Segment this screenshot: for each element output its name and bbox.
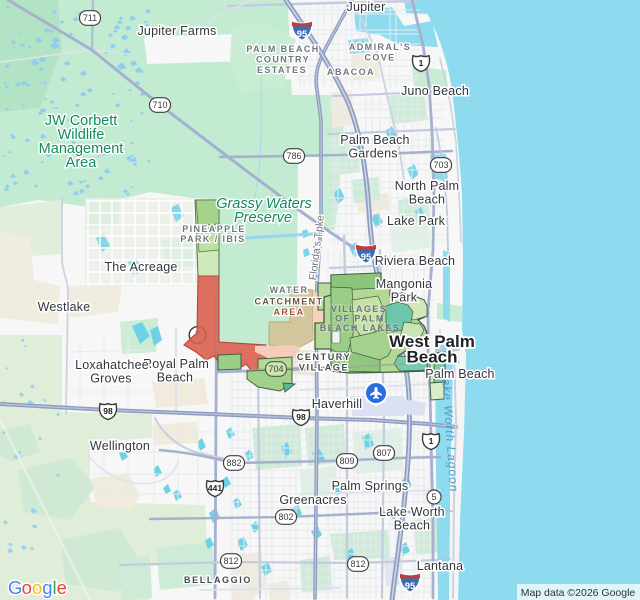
svg-text:Juno Beach: Juno Beach: [401, 84, 469, 98]
svg-text:Greenacres: Greenacres: [279, 493, 346, 507]
svg-text:704: 704: [268, 364, 283, 374]
svg-text:BELLAGGIO: BELLAGGIO: [184, 575, 252, 585]
svg-text:98: 98: [296, 412, 306, 422]
svg-text:g: g: [42, 577, 52, 598]
svg-text:807: 807: [376, 448, 391, 458]
svg-text:786: 786: [286, 151, 301, 161]
svg-text:Haverhill: Haverhill: [312, 397, 362, 411]
svg-text:95: 95: [405, 581, 416, 592]
svg-text:Westlake: Westlake: [38, 300, 91, 314]
svg-text:ABACOA: ABACOA: [327, 67, 375, 77]
svg-text:812: 812: [223, 556, 238, 566]
svg-text:710: 710: [152, 100, 167, 110]
svg-text:1: 1: [429, 436, 434, 446]
svg-text:5: 5: [431, 492, 436, 502]
svg-text:98: 98: [103, 406, 113, 416]
svg-text:G: G: [8, 577, 22, 598]
svg-text:Lantana: Lantana: [417, 559, 464, 573]
svg-text:Jupiter: Jupiter: [347, 0, 386, 14]
svg-text:Jupiter Farms: Jupiter Farms: [137, 24, 216, 38]
svg-text:711: 711: [83, 13, 97, 23]
svg-text:441: 441: [208, 483, 222, 493]
svg-text:882: 882: [226, 458, 241, 468]
svg-text:Palm Beach: Palm Beach: [425, 367, 494, 381]
svg-text:Map data ©2026 Google: Map data ©2026 Google: [521, 587, 636, 599]
svg-text:Riviera Beach: Riviera Beach: [375, 254, 455, 268]
svg-text:CENTURYVILLAGE: CENTURYVILLAGE: [297, 352, 351, 373]
svg-text:1: 1: [419, 58, 424, 68]
svg-text:Wellington: Wellington: [90, 439, 150, 453]
svg-text:703: 703: [433, 160, 448, 170]
svg-text:809: 809: [339, 456, 354, 466]
svg-text:Lake Park: Lake Park: [387, 214, 446, 228]
svg-text:o: o: [22, 577, 32, 598]
svg-text:812: 812: [350, 559, 365, 569]
svg-text:Palm Springs: Palm Springs: [332, 479, 409, 493]
svg-text:PINEAPPLEPARK / IBIS: PINEAPPLEPARK / IBIS: [180, 224, 245, 244]
svg-text:95: 95: [361, 252, 372, 263]
svg-text:e: e: [57, 577, 67, 598]
svg-text:The Acreage: The Acreage: [104, 260, 177, 274]
svg-text:802: 802: [278, 512, 293, 522]
svg-text:o: o: [32, 577, 42, 598]
svg-text:95: 95: [297, 29, 308, 40]
